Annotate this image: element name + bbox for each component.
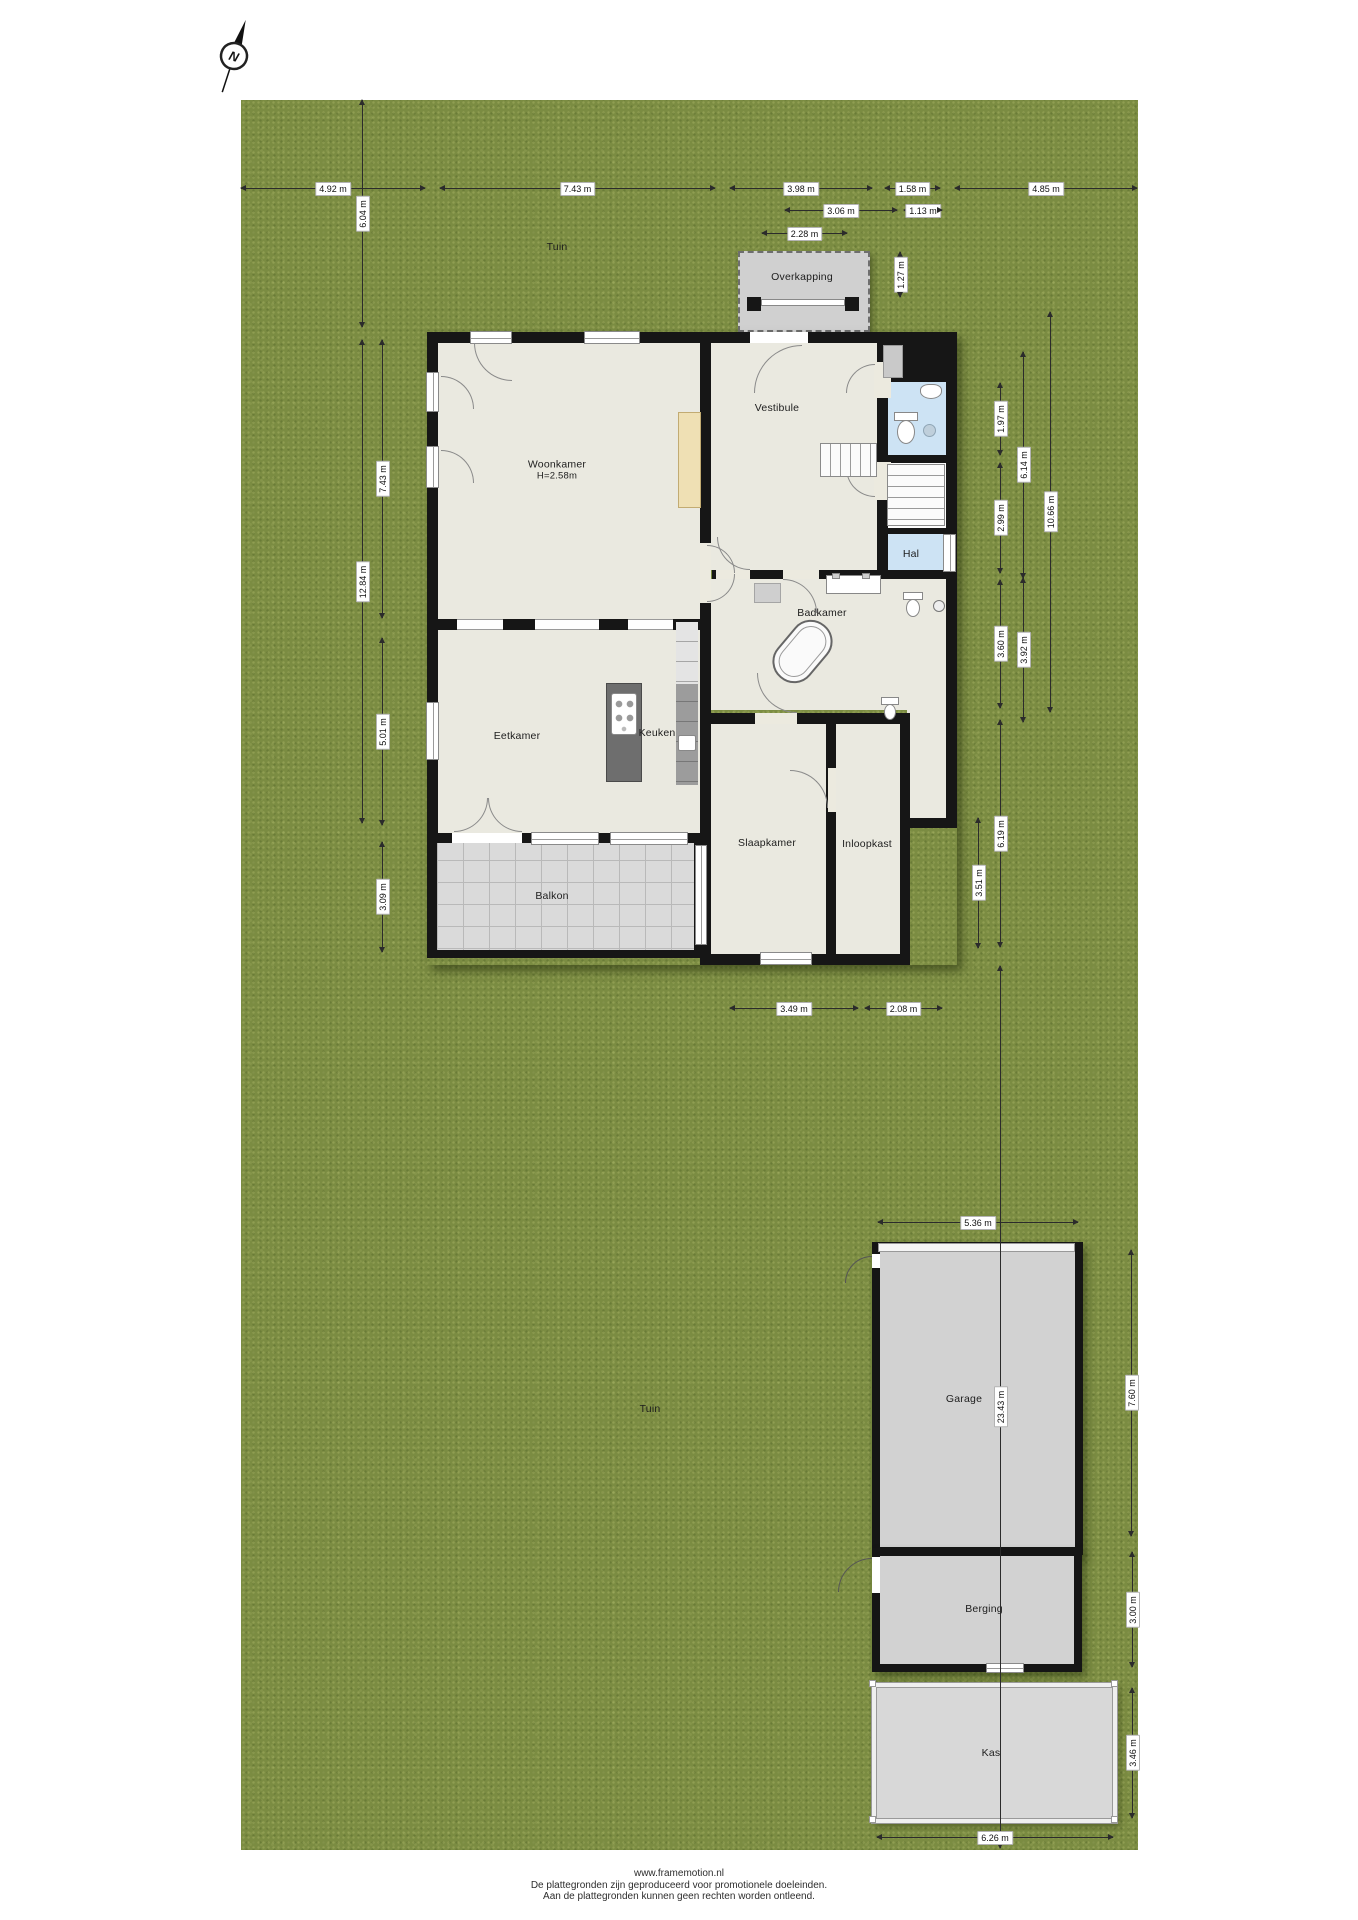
faucet [862, 573, 870, 579]
kas-corner [1111, 1680, 1118, 1687]
closet [883, 345, 903, 378]
kitchen-sink [678, 735, 696, 751]
window [610, 832, 688, 845]
garage-door [878, 1243, 1075, 1252]
wall-segment [427, 838, 437, 958]
wall-segment [900, 713, 910, 965]
canopy-post [845, 297, 859, 311]
wall-segment [900, 818, 957, 828]
footer-disclaimer-2: Aan de plattegronden kunnen geen rechten… [0, 1891, 1358, 1903]
kas-corner [869, 1680, 876, 1687]
slaapkamer-floor [711, 721, 900, 954]
garage-floor [880, 1250, 1075, 1547]
sideboard [678, 412, 701, 508]
window [584, 331, 640, 344]
toilet-bowl [884, 704, 896, 720]
kas-greenhouse [872, 1683, 1117, 1823]
drain-icon [923, 424, 936, 437]
canopy-post [747, 297, 761, 311]
footer-disclaimer-1: De plattegronden zijn geproduceerd voor … [0, 1880, 1358, 1892]
bathroom-nook-floor [907, 710, 946, 818]
door-gap [783, 570, 819, 579]
towel-radiator [933, 600, 945, 612]
kas-inner-frame [876, 1687, 1113, 1819]
stairs [887, 464, 945, 526]
overkapping-canopy [738, 251, 870, 332]
wall-segment [711, 713, 907, 724]
door-gap [872, 1557, 880, 1593]
wall-segment [826, 724, 836, 954]
door-gap [750, 332, 808, 343]
hal-room [884, 534, 945, 570]
balkon-tiles [437, 838, 694, 950]
wall-segment [700, 343, 711, 543]
wall-segment [427, 950, 700, 958]
cased-opening [457, 619, 503, 630]
door-gap [872, 1254, 880, 1268]
wall-segment [946, 332, 957, 828]
window [531, 832, 599, 845]
window [426, 372, 439, 412]
cased-opening [535, 619, 599, 630]
window [426, 446, 439, 488]
stairs [820, 443, 877, 477]
window [986, 1663, 1024, 1673]
kas-corner [1111, 1816, 1118, 1823]
balcony-door [695, 845, 707, 945]
cased-opening [628, 619, 673, 630]
kitchen-counter-lines [676, 622, 698, 785]
toilet-bowl [897, 420, 915, 444]
footer: www.framemotion.nl De plattegronden zijn… [0, 1868, 1358, 1903]
footer-url: www.framemotion.nl [0, 1868, 1358, 1880]
window [760, 952, 812, 965]
kas-corner [869, 1816, 876, 1823]
floorplan-canvas: N [0, 0, 1358, 1920]
stove [611, 693, 637, 735]
sliding-glass-door [761, 299, 845, 306]
window [943, 534, 956, 572]
door-gap [755, 713, 797, 724]
compass-icon: N [196, 14, 272, 98]
door-gap [452, 833, 522, 843]
toilet-bowl [906, 599, 920, 617]
woonkamer-floor [438, 343, 700, 619]
berging-floor [880, 1556, 1074, 1664]
shower-mat [754, 583, 781, 603]
faucet [832, 573, 840, 579]
window [426, 702, 439, 760]
washbasin [920, 384, 942, 399]
door-gap [828, 768, 836, 812]
